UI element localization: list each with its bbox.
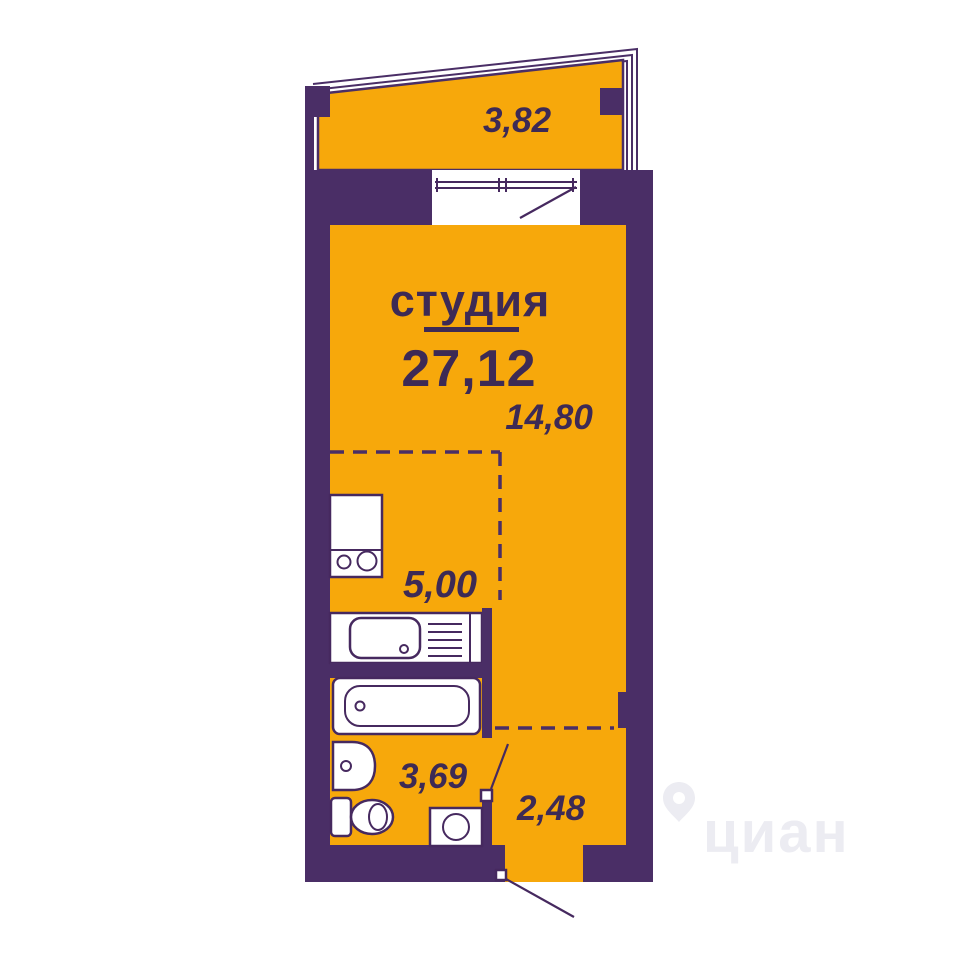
balcony-area-label: 3,82 (483, 101, 552, 140)
right-wall-pilaster (618, 692, 626, 728)
hallway-area-label: 2,48 (516, 789, 586, 828)
kitchen-sink-basin (350, 618, 420, 658)
entrance-opening (505, 845, 583, 882)
floor-plan: 3,82 студия 27,12 14,80 5,00 (0, 0, 960, 960)
bathroom-right-wall (482, 608, 492, 738)
watermark-label: циан (703, 800, 850, 865)
apartment-type-label: студия (390, 275, 551, 326)
title-underline (424, 327, 519, 332)
bathroom-wall-stub (482, 800, 492, 845)
balcony-door-opening (432, 170, 580, 225)
balcony-wall-left-block (305, 86, 330, 117)
watermark-pin-icon (663, 782, 695, 822)
wall-right (626, 170, 653, 882)
total-area-label: 27,12 (401, 340, 536, 398)
bathroom-sink (333, 742, 375, 790)
wall-bottom (305, 845, 653, 882)
kitchen-area-label: 5,00 (403, 564, 477, 606)
kitchen-bathroom-divider-wall (330, 663, 492, 678)
entrance-door-swing (506, 879, 574, 917)
watermark: циан (663, 782, 850, 865)
balcony-wall-right-block (600, 88, 623, 115)
balcony: 3,82 (305, 49, 637, 170)
entrance-door-hinge (496, 870, 506, 880)
balcony-floor (318, 60, 623, 170)
studio-area-label: 14,80 (505, 398, 593, 437)
toilet-tank (331, 798, 351, 836)
wall-left (305, 170, 330, 882)
bathroom-area-label: 3,69 (399, 757, 468, 796)
bathroom-door-hinge (481, 790, 492, 801)
